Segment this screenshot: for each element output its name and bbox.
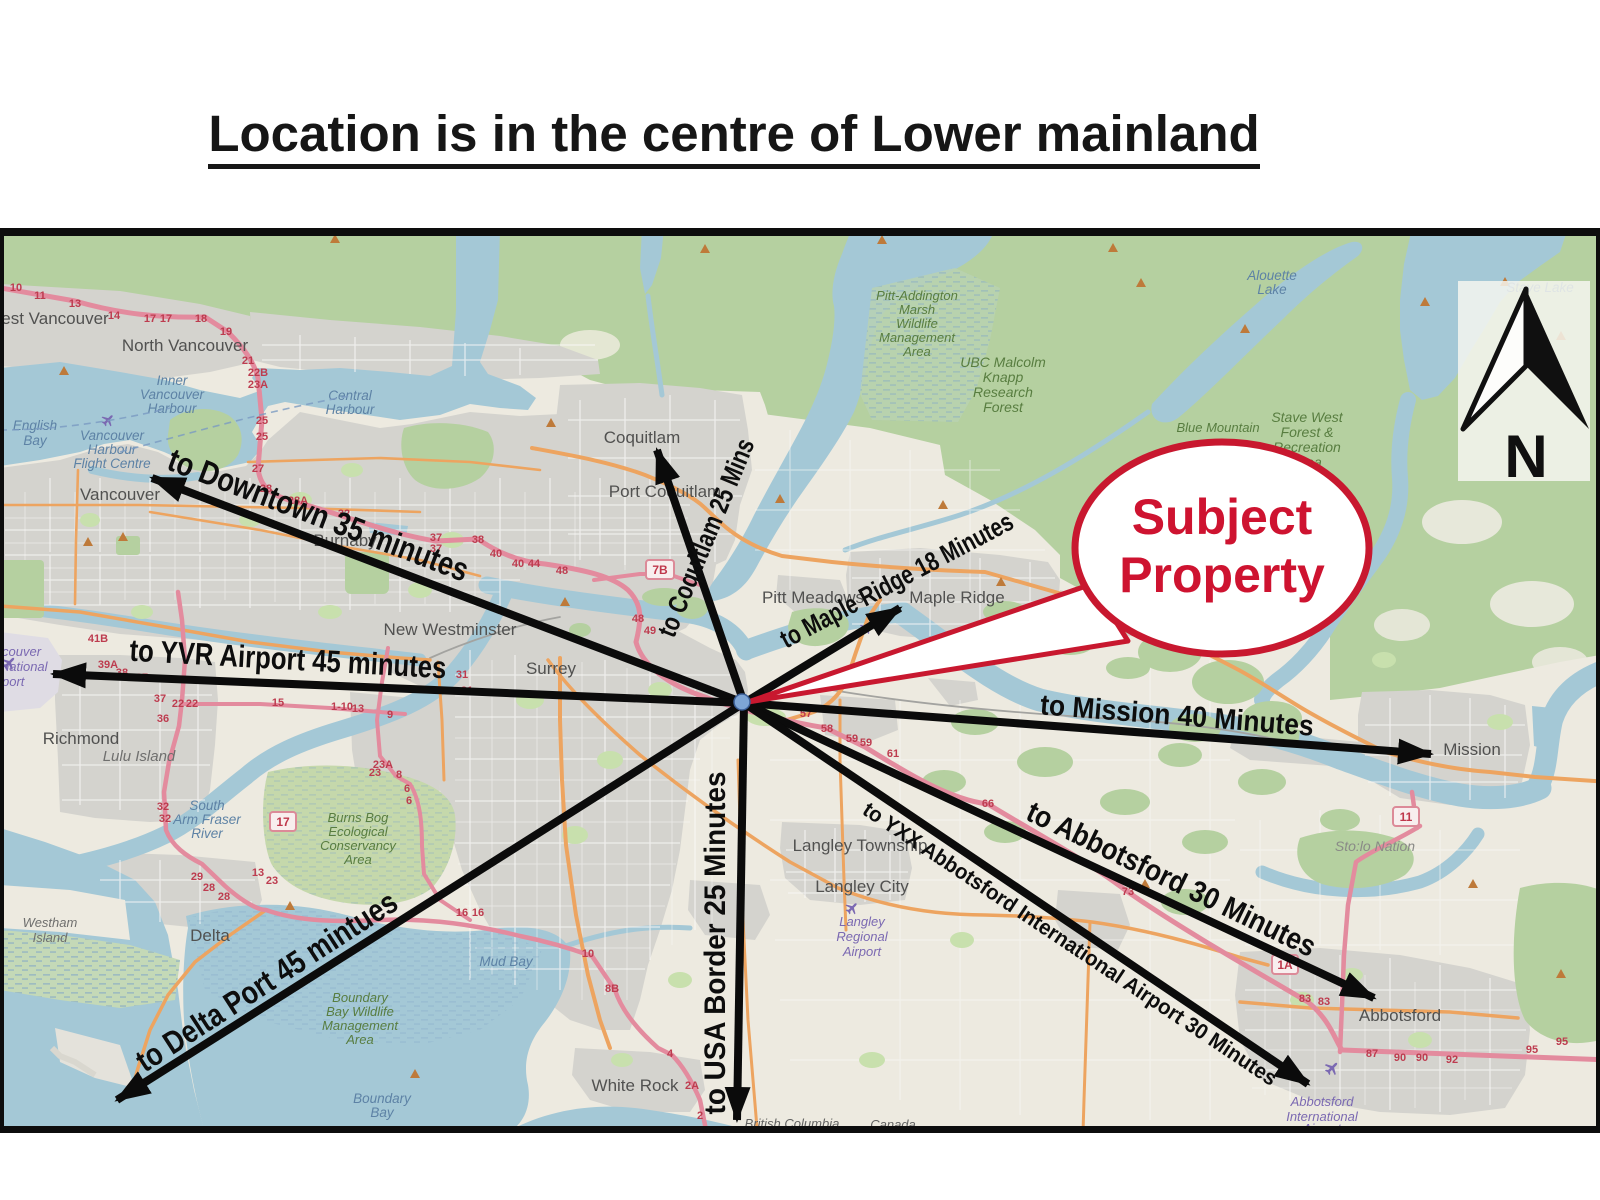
- svg-text:Property: Property: [1119, 547, 1325, 603]
- svg-text:to USA Border 25 Minutes: to USA Border 25 Minutes: [699, 772, 732, 1115]
- svg-text:Subject: Subject: [1132, 489, 1313, 545]
- svg-text:N: N: [1504, 423, 1547, 490]
